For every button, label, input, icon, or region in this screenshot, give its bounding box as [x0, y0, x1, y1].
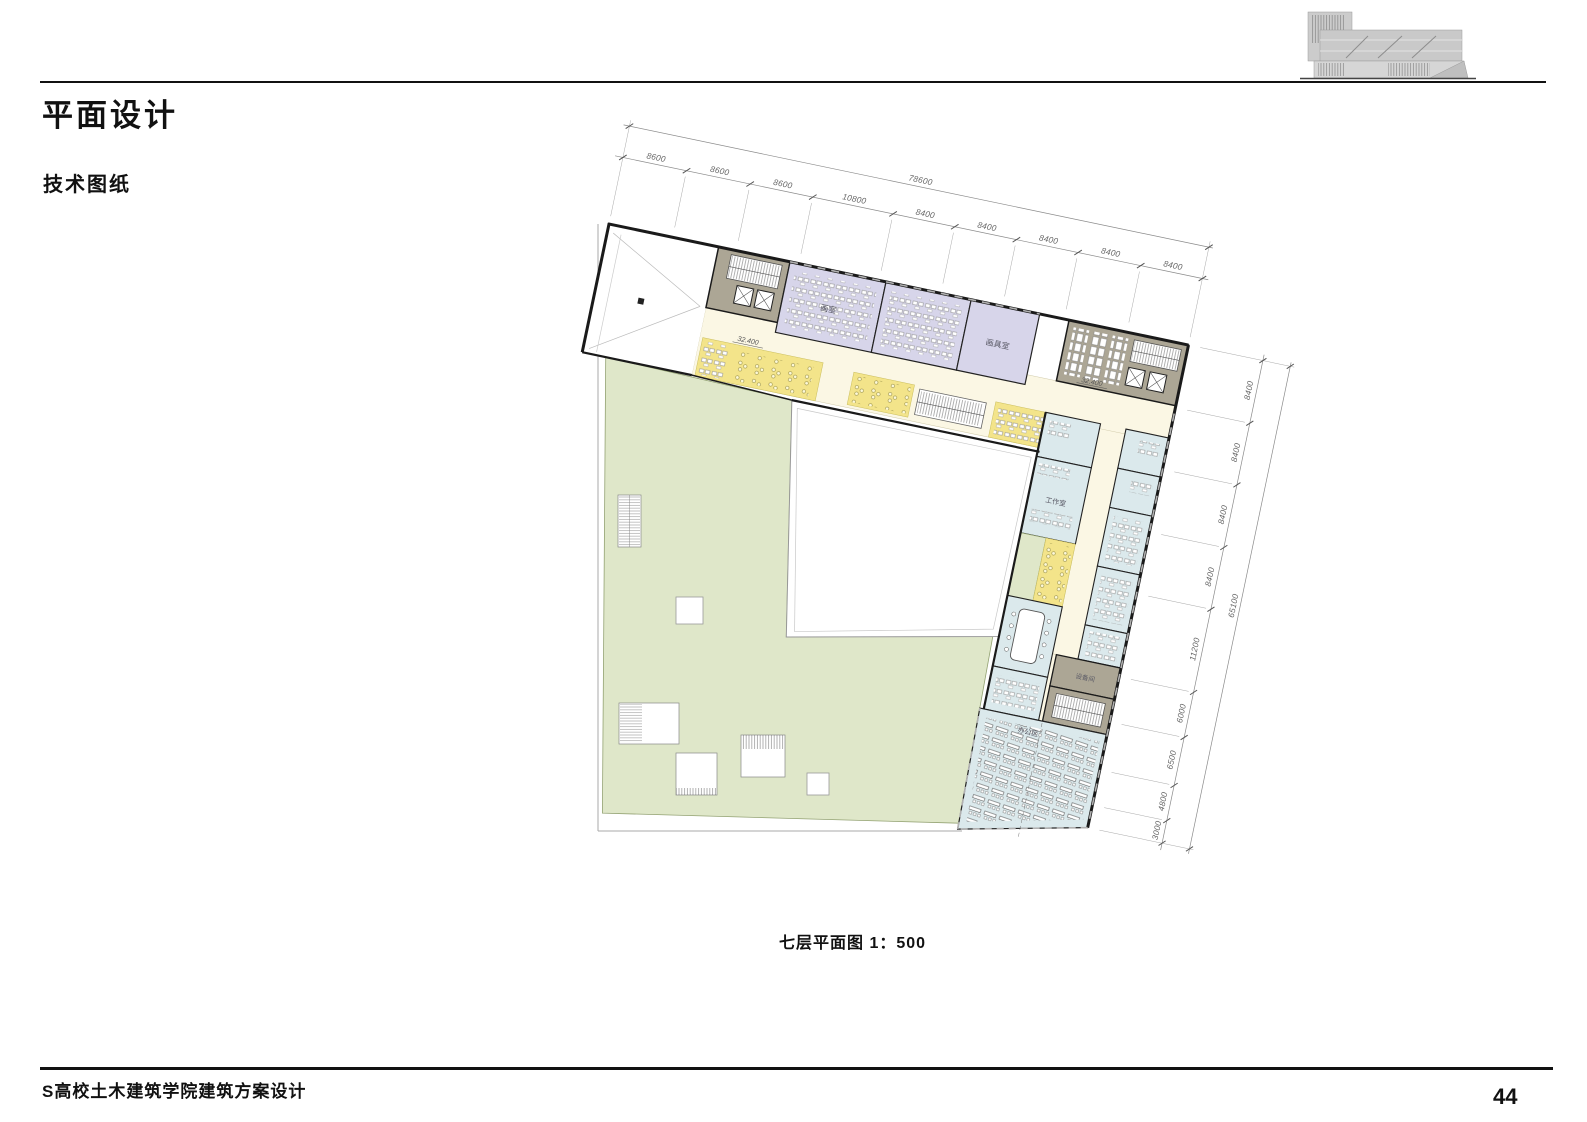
svg-text:6000: 6000 — [1174, 703, 1188, 724]
svg-text:8400: 8400 — [915, 207, 936, 221]
svg-text:11200: 11200 — [1187, 637, 1202, 662]
elevation-thumbnail — [1300, 12, 1476, 79]
roof-skylight-b — [741, 735, 785, 777]
svg-text:3000: 3000 — [1150, 820, 1164, 841]
roof-skylight-small-1 — [676, 597, 703, 624]
svg-text:4800: 4800 — [1156, 791, 1170, 812]
svg-text:6500: 6500 — [1164, 749, 1178, 770]
svg-text:8400: 8400 — [1038, 232, 1059, 246]
plan-rotated-group: 画室 画具室 32.400 — [483, 113, 1317, 933]
roof-skylight-a — [676, 753, 717, 795]
roof-stair-2 — [619, 703, 679, 744]
floor-plan-drawing: 画室 画具室 32.400 — [0, 0, 1587, 1122]
svg-text:8400: 8400 — [1163, 258, 1184, 272]
open-office-area: 办公区 — [955, 708, 1107, 855]
svg-text:8600: 8600 — [772, 177, 793, 191]
svg-text:8400: 8400 — [977, 219, 998, 233]
drawing-caption: 七层平面图 1：500 — [779, 929, 926, 953]
svg-text:8600: 8600 — [709, 164, 730, 178]
footer-text: S高校土木建筑学院建筑方案设计 — [42, 1077, 306, 1102]
svg-text:8400: 8400 — [1242, 380, 1256, 401]
svg-text:8600: 8600 — [646, 150, 667, 164]
svg-text:8400: 8400 — [1203, 566, 1217, 587]
page: 平面设计 技术图纸 — [0, 0, 1587, 1122]
svg-text:8400: 8400 — [1216, 504, 1230, 525]
svg-text:8400: 8400 — [1229, 442, 1243, 463]
page-number: 44 — [1493, 1084, 1517, 1110]
roof-stair-1 — [618, 495, 641, 547]
roof-skylight-small-2 — [807, 773, 829, 795]
footer-rule — [40, 1067, 1553, 1070]
svg-text:8400: 8400 — [1100, 245, 1121, 259]
